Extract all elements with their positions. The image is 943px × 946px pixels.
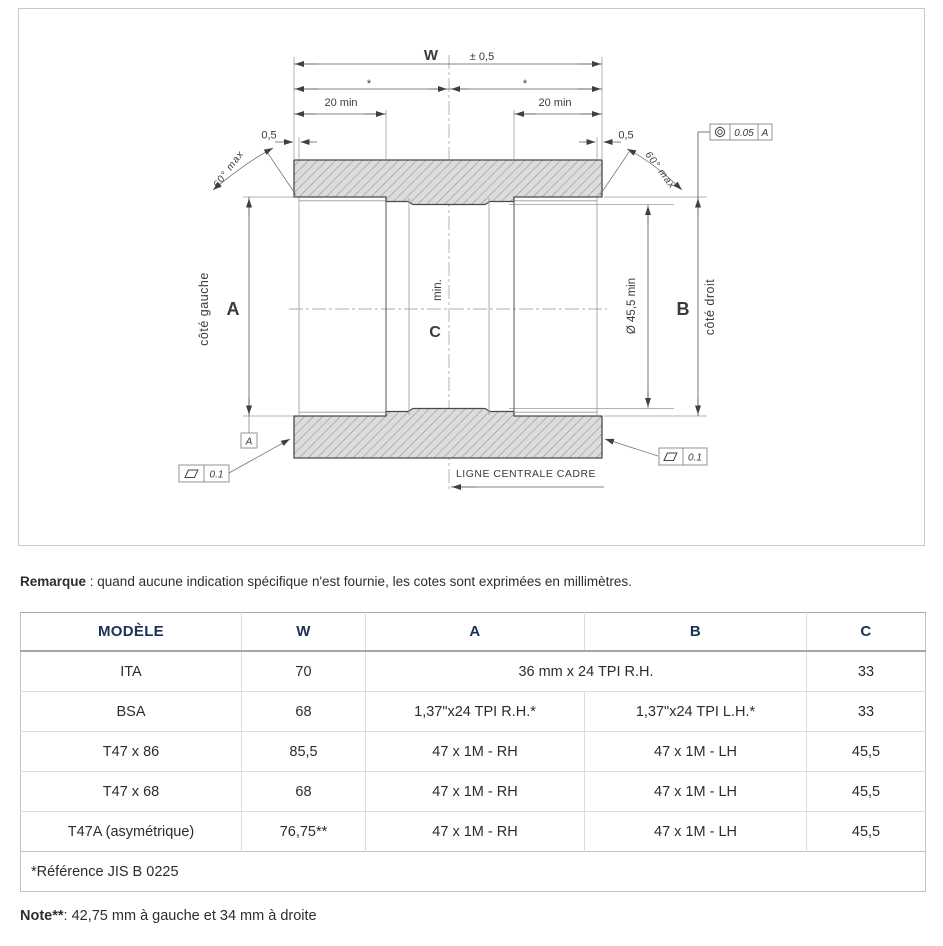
flatness-frame-left: [179, 439, 290, 482]
col-header-b: B: [585, 613, 807, 652]
face-relief-right-label: 0,5: [618, 130, 633, 142]
cell-a: 47 x 1M - RH: [366, 772, 585, 812]
cell-a: 47 x 1M - RH: [366, 812, 585, 852]
cell-b: 1,37"x24 TPI L.H.*: [585, 692, 807, 732]
cell-w: 70: [242, 651, 366, 692]
half-width-mark-right: *: [523, 78, 528, 90]
table-footnote: *Référence JIS B 0225: [21, 852, 926, 892]
col-header-a: A: [366, 613, 585, 652]
face-relief-left-label: 0,5: [261, 130, 276, 142]
col-header-c: C: [807, 613, 926, 652]
note-label: Note**: [20, 908, 64, 924]
flatness-right-value: 0.1: [688, 453, 702, 464]
cell-model: T47A (asymétrique): [21, 812, 242, 852]
table-row: T47 x 8685,547 x 1M - RH47 x 1M - LH45,5: [21, 732, 926, 772]
cell-a-b-merged: 36 mm x 24 TPI R.H.: [366, 651, 807, 692]
technical-drawing-frame: W ± 0,5 * * 20 min 20 min 0,5 0,5 60° ma…: [18, 8, 925, 546]
col-header-model: MODÈLE: [21, 613, 242, 652]
bore-lines: [299, 198, 597, 415]
concentricity-datum: A: [761, 128, 769, 139]
side-right-label: côté droit: [703, 279, 717, 335]
cell-c: 45,5: [807, 772, 926, 812]
top-wall: [294, 160, 602, 205]
table-header-row: MODÈLE W A B C: [21, 613, 926, 652]
cell-w: 68: [242, 772, 366, 812]
dim-b-label: B: [677, 299, 690, 319]
units-remark: Remarque : quand aucune indication spéci…: [20, 574, 920, 589]
cell-model: BSA: [21, 692, 242, 732]
cell-c: 45,5: [807, 812, 926, 852]
datum-label: A: [245, 437, 253, 448]
dim-c-label: C: [429, 324, 441, 341]
table-row: ITA7036 mm x 24 TPI R.H.33: [21, 651, 926, 692]
extension-lines: [243, 57, 707, 416]
page: W ± 0,5 * * 20 min 20 min 0,5 0,5 60° ma…: [0, 0, 943, 946]
cell-w: 76,75**: [242, 812, 366, 852]
chamfer-angle-right-label: 60° max: [642, 150, 677, 192]
cell-a: 1,37"x24 TPI R.H.*: [366, 692, 585, 732]
cell-c: 33: [807, 692, 926, 732]
spec-table-body: ITA7036 mm x 24 TPI R.H.33BSA681,37"x24 …: [21, 651, 926, 852]
col-header-w: W: [242, 613, 366, 652]
cell-model: T47 x 86: [21, 732, 242, 772]
remark-text: : quand aucune indication spécifique n'e…: [86, 574, 632, 589]
dim-w-tolerance: ± 0,5: [470, 51, 494, 63]
cell-model: ITA: [21, 651, 242, 692]
dim-c-min-label: min.: [432, 279, 444, 301]
thread-depth-right-label: 20 min: [538, 97, 571, 109]
thread-depth-left-label: 20 min: [324, 97, 357, 109]
cell-model: T47 x 68: [21, 772, 242, 812]
table-footnote-row: *Référence JIS B 0225: [21, 852, 926, 892]
cell-c: 33: [807, 651, 926, 692]
bore-diameter-label: Ø 45,5 min: [626, 278, 638, 334]
half-width-mark-left: *: [367, 78, 372, 90]
bottom-wall: [294, 409, 602, 459]
cell-w: 85,5: [242, 732, 366, 772]
cell-b: 47 x 1M - LH: [585, 812, 807, 852]
spec-table: MODÈLE W A B C ITA7036 mm x 24 TPI R.H.3…: [20, 612, 926, 892]
cell-b: 47 x 1M - LH: [585, 732, 807, 772]
chamfer-angle-left-label: 60° max: [211, 149, 246, 191]
bottom-note: Note**: 42,75 mm à gauche et 34 mm à dro…: [20, 908, 920, 924]
cell-a: 47 x 1M - RH: [366, 732, 585, 772]
dim-w-label: W: [424, 47, 439, 64]
table-row: T47 x 686847 x 1M - RH47 x 1M - LH45,5: [21, 772, 926, 812]
remark-label: Remarque: [20, 574, 86, 589]
table-row: BSA681,37"x24 TPI R.H.*1,37"x24 TPI L.H.…: [21, 692, 926, 732]
centerline-label: LIGNE CENTRALE CADRE: [456, 468, 596, 480]
concentricity-value: 0.05: [734, 128, 754, 139]
cell-b: 47 x 1M - LH: [585, 772, 807, 812]
side-left-label: côté gauche: [197, 272, 211, 346]
dim-a-label: A: [227, 299, 240, 319]
shell-cross-section-drawing: W ± 0,5 * * 20 min 20 min 0,5 0,5 60° ma…: [19, 9, 924, 545]
flatness-left-value: 0.1: [210, 470, 224, 481]
note-text: : 42,75 mm à gauche et 34 mm à droite: [64, 908, 317, 924]
table-row: T47A (asymétrique)76,75**47 x 1M - RH47 …: [21, 812, 926, 852]
cell-c: 45,5: [807, 732, 926, 772]
cell-w: 68: [242, 692, 366, 732]
